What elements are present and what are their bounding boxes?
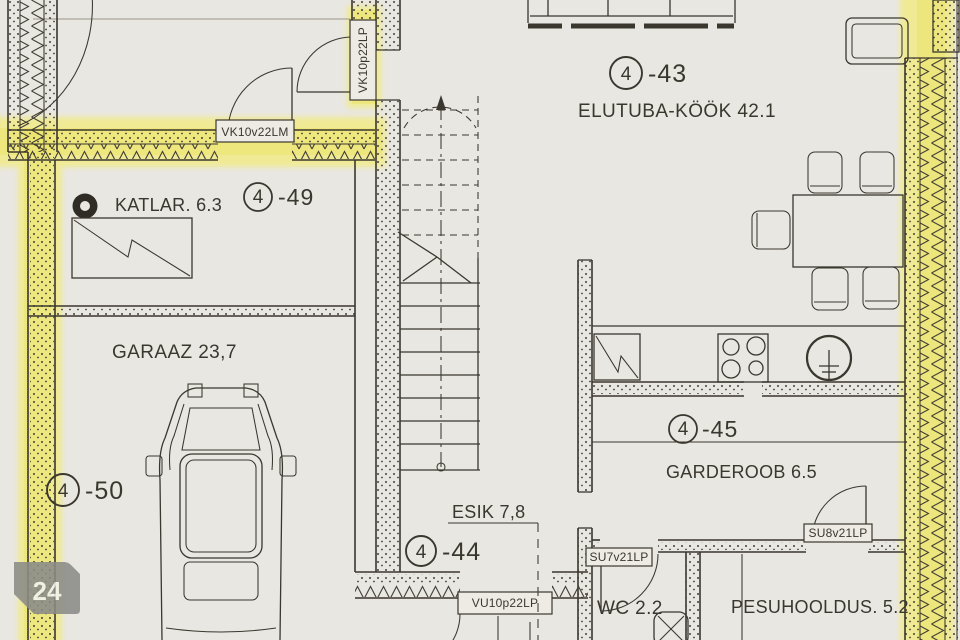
room-tag-43: -43	[648, 60, 687, 88]
room-label-wc: WC 2.2	[597, 598, 663, 619]
room-tag-44: -44	[442, 538, 481, 566]
room-label-pesuhooldus: PESUHOOLDUS. 5.2	[731, 597, 909, 617]
floorplan-photo: VK10v22LM VK10p22LP	[0, 0, 960, 640]
room-tag-45: -45	[702, 416, 738, 442]
room-tag-50: -50	[85, 477, 124, 505]
svg-text:4: 4	[621, 64, 632, 85]
room-label-elutuba: ELUTUBA-KÖÖK 42.1	[578, 101, 776, 122]
floorplan-svg: VK10v22LM VK10p22LP	[0, 0, 960, 640]
label-pesuhooldus: PESUHOOLDUS. 5.2	[731, 597, 909, 617]
label-wc: WC 2.2	[597, 598, 663, 619]
opening-code-vk10p22lp: VK10p22LP	[356, 27, 370, 93]
room-label-katlar: KATLAR. 6.3	[115, 195, 222, 215]
exterior-wall-right	[905, 0, 959, 640]
svg-text:4: 4	[253, 187, 264, 208]
room-tag-49: -49	[278, 184, 314, 210]
opening-code-su8v21lp: SU8v21LP	[809, 526, 868, 540]
opening-code-vk10v22lm: VK10v22LM	[221, 125, 288, 139]
room-label-garderoob: GARDEROOB 6.5	[666, 462, 817, 482]
room-label-esik: ESIK 7,8	[452, 502, 525, 522]
room-label-garaaz: GARAAZ 23,7	[112, 342, 237, 363]
opening-code-su7v21lp: SU7v21LP	[590, 550, 649, 564]
svg-text:4: 4	[58, 481, 69, 502]
svg-text:4: 4	[678, 419, 689, 440]
opening-code-vu10p22lp: VU10p22LP	[472, 596, 539, 610]
badge-label: 24	[33, 576, 62, 606]
svg-text:4: 4	[416, 542, 427, 563]
wall-top-horizontal	[8, 130, 375, 160]
